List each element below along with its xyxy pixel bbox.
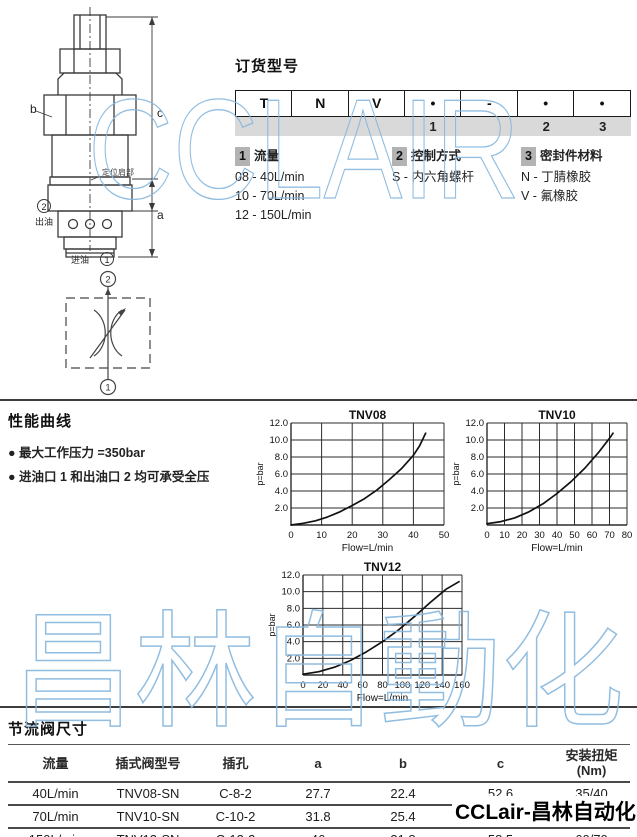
svg-text:6.0: 6.0 [287,620,300,631]
section-divider [0,706,637,708]
cell: TNV12-SN [103,828,193,837]
svg-text:80: 80 [622,530,633,541]
bullet-max-pressure: ● 最大工作压力 =350bar [8,442,258,461]
spec-group-flow: 1流量 08 - 40L/min 10 - 70L/min 12 - 150L/… [235,147,385,225]
dimensions-title: 节流阀尺寸 [8,718,88,739]
table-header-row: 流量 插式阀型号 插孔 a b c 安装扭矩 (Nm) [8,745,630,783]
symbol-port-1: 1 [105,383,110,394]
spec-item: 08 - 40L/min [235,168,385,187]
section-divider [0,399,637,401]
code-cell: • [404,90,462,117]
code-cell: N [291,90,349,117]
cell: TNV08-SN [103,782,193,805]
cell: 150L/min [8,828,103,837]
svg-text:4.0: 4.0 [275,486,288,497]
chart-xlabel: Flow=L/min [342,543,393,554]
ordering-title: 订货型号 [235,55,299,76]
svg-text:40: 40 [408,530,419,541]
col-header: a [278,745,358,783]
chart-curve [303,582,459,675]
col-header: 安装扭矩 (Nm) [553,745,630,783]
cell: 40L/min [8,782,103,805]
chart-tnv12: TNV120204060801001201401602.04.06.08.010… [266,560,472,708]
col-header: 流量 [8,745,103,783]
spec-item: S - 内六角螺杆 [392,168,522,187]
position-cell [292,117,349,136]
position-cell [461,117,518,136]
table-row: 150L/min TNV12-SN C-12-2 46 31.8 58.5 60… [8,828,630,837]
code-cell: V [348,90,406,117]
spec-item: 10 - 70L/min [235,187,385,206]
position-cell: 2 [518,117,575,136]
datasheet-page: b c a 定位肩部 2 出油 进油 1 2 1 订货型号 T N V [0,0,637,837]
chart-xlabel: Flow=L/min [531,543,582,554]
cell: 27.7 [278,782,358,805]
svg-text:80: 80 [377,680,388,691]
svg-text:50: 50 [439,530,450,541]
svg-text:70: 70 [604,530,615,541]
svg-text:12.0: 12.0 [270,418,289,429]
cell: C-12-2 [193,828,278,837]
chart-curve [487,433,613,524]
col-header: 插孔 [193,745,278,783]
svg-text:10: 10 [316,530,327,541]
code-cell: • [517,90,575,117]
svg-text:0: 0 [300,680,305,691]
svg-text:20: 20 [347,530,358,541]
cell: 31.8 [278,805,358,828]
shoulder-label: 定位肩部 [102,167,134,177]
chart-title: TNV08 [349,408,387,422]
svg-text:0: 0 [288,530,293,541]
position-cell [235,117,292,136]
svg-text:120: 120 [414,680,430,691]
dim-label-c: c [157,106,163,120]
chart-xlabel: Flow=L/min [357,693,408,704]
spec-item: 12 - 150L/min [235,206,385,225]
svg-text:10.0: 10.0 [466,435,485,446]
code-cell: - [460,90,518,117]
code-cell: T [235,90,293,117]
dim-label-b: b [30,102,37,116]
svg-text:160: 160 [454,680,470,691]
svg-text:2.0: 2.0 [275,503,288,514]
spec-num-badge: 1 [235,147,250,166]
svg-text:6.0: 6.0 [275,469,288,480]
valve-drawing: b c a 定位肩部 2 出油 进油 1 [10,5,220,267]
chart-tnv10: TNV10010203040506070802.04.06.08.010.012… [450,408,637,558]
performance-title: 性能曲线 [8,410,72,431]
model-code-table: T N V • - • • [235,90,631,117]
svg-text:10.0: 10.0 [270,435,289,446]
spec-group-control: 2控制方式 S - 内六角螺杆 [392,147,522,187]
svg-text:8.0: 8.0 [287,603,300,614]
chart-ylabel: p=bar [255,462,265,485]
svg-text:6.0: 6.0 [471,469,484,480]
svg-text:12.0: 12.0 [466,418,485,429]
svg-text:20: 20 [318,680,329,691]
chart-title: TNV10 [538,408,576,422]
cell: 70L/min [8,805,103,828]
chart-ylabel: p=bar [267,613,277,636]
cell: 46 [278,828,358,837]
chart-title: TNV12 [364,560,402,574]
spec-item: N - 丁腈橡胶 [521,168,636,187]
chart-tnv08: TNV08010203040502.04.06.08.010.012.0Flow… [254,408,454,558]
chart-curve [291,433,426,525]
port1-label: 进油 [71,254,89,265]
svg-text:30: 30 [378,530,389,541]
svg-text:0: 0 [484,530,489,541]
watermark-bottom-right: CCLair-昌林自动化 [452,796,637,826]
cell: TNV10-SN [103,805,193,828]
cell: 22.4 [358,782,448,805]
spec-item: V - 氟橡胶 [521,187,636,206]
spec-num-badge: 2 [392,147,407,166]
svg-text:10: 10 [499,530,510,541]
cell: C-10-2 [193,805,278,828]
svg-text:4.0: 4.0 [471,486,484,497]
dimension-lines [36,17,158,257]
cell: 60/70 [553,828,630,837]
code-position-row: 1 2 3 [235,117,631,136]
bullet-full-pressure: ● 进油口 1 和出油口 2 均可承受全压 [8,466,258,485]
svg-text:4.0: 4.0 [287,637,300,648]
svg-text:140: 140 [434,680,450,691]
spec-group-title: 密封件材料 [540,149,603,163]
position-cell: 1 [405,117,462,136]
svg-text:8.0: 8.0 [275,452,288,463]
svg-text:2.0: 2.0 [471,503,484,514]
svg-text:30: 30 [534,530,545,541]
svg-text:10.0: 10.0 [282,587,301,598]
svg-text:60: 60 [357,680,368,691]
code-cell: • [573,90,631,117]
col-header: c [448,745,553,783]
cell: 58.5 [448,828,553,837]
port2-label: 出油 [35,216,53,227]
svg-text:40: 40 [552,530,563,541]
svg-text:40: 40 [337,680,348,691]
cell: C-8-2 [193,782,278,805]
svg-text:12.0: 12.0 [282,570,301,581]
svg-text:50: 50 [569,530,580,541]
spec-group-title: 流量 [254,149,279,163]
spec-group-seal: 3密封件材料 N - 丁腈橡胶 V - 氟橡胶 [521,147,636,206]
svg-text:100: 100 [394,680,410,691]
svg-text:2.0: 2.0 [287,653,300,664]
cell: 25.4 [358,805,448,828]
position-cell: 3 [574,117,631,136]
dim-label-a: a [157,208,164,222]
cell: 31.8 [358,828,448,837]
svg-text:8.0: 8.0 [471,452,484,463]
hydraulic-symbol: 2 1 [52,268,172,398]
chart-ylabel: p=bar [451,462,461,485]
col-header: 插式阀型号 [103,745,193,783]
position-cell [348,117,405,136]
port1-number: 1 [104,255,109,265]
symbol-port-2: 2 [105,275,110,286]
col-header: b [358,745,448,783]
svg-text:60: 60 [587,530,598,541]
port2-number: 2 [41,202,46,212]
spec-group-title: 控制方式 [411,149,461,163]
spec-num-badge: 3 [521,147,536,166]
svg-text:20: 20 [517,530,528,541]
